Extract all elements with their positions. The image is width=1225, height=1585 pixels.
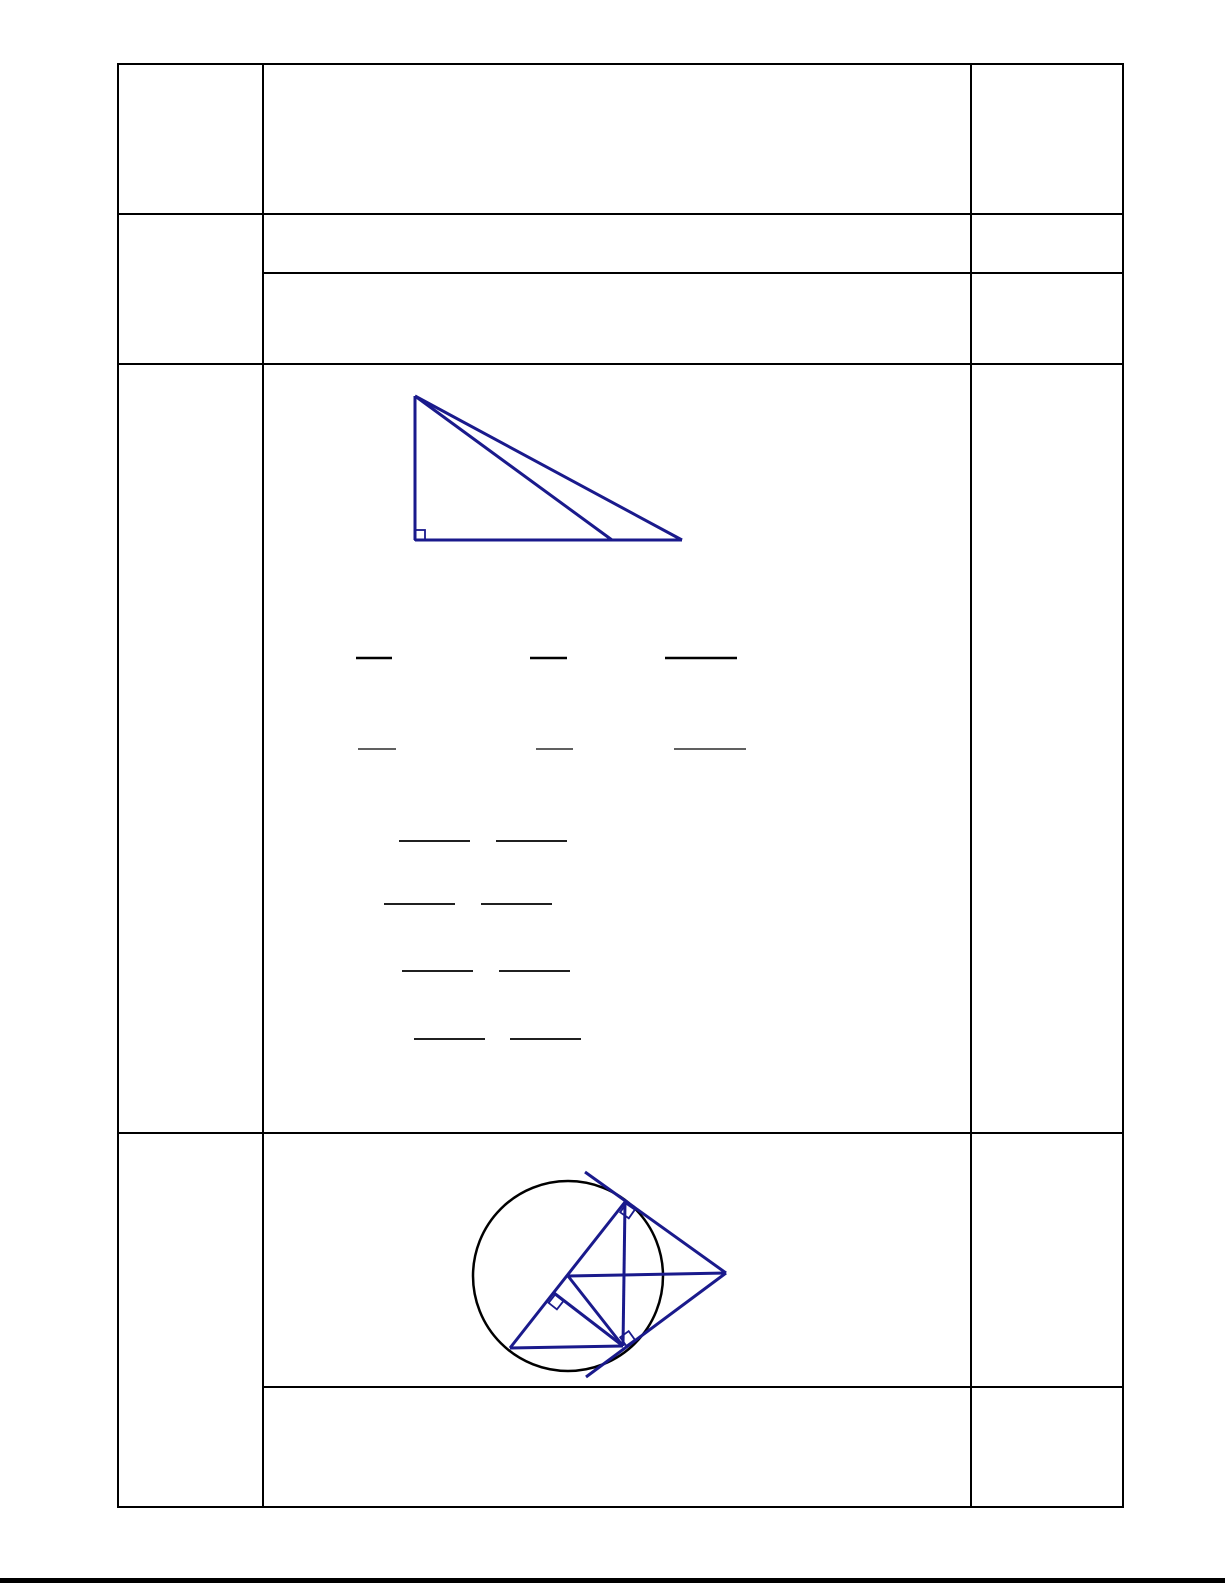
table-cell-r4b-c3[interactable] — [970, 1386, 1123, 1506]
table-divider-row3-row4 — [117, 1132, 1124, 1134]
table-cell-r2a-c2[interactable] — [262, 213, 970, 272]
table-divider-col1-col2 — [262, 63, 264, 1508]
table-divider-row1-row2 — [117, 213, 1124, 215]
table-cell-r1-c3[interactable] — [970, 63, 1123, 213]
table-subdivider-row4 — [262, 1386, 1124, 1388]
table-cell-r3-c2[interactable] — [262, 363, 970, 1132]
table-cell-r4a-c3[interactable] — [970, 1132, 1123, 1386]
table-cell-r2b-c2[interactable] — [262, 272, 970, 363]
table-cell-r2-c1[interactable] — [117, 213, 262, 363]
worksheet-page — [0, 0, 1225, 1585]
table-border-right — [1122, 63, 1124, 1508]
table-cell-r1-c2[interactable] — [262, 63, 970, 213]
table-border-bottom — [117, 1506, 1124, 1508]
table-cell-r4-c1[interactable] — [117, 1132, 262, 1506]
table-cell-r3-c3[interactable] — [970, 363, 1123, 1132]
table-border-top — [117, 63, 1124, 65]
table-cell-r1-c1[interactable] — [117, 63, 262, 213]
table-divider-row2-row3 — [117, 363, 1124, 365]
table-cell-r3-c1[interactable] — [117, 363, 262, 1132]
table-divider-col2-col3 — [970, 63, 972, 1508]
table-cell-r4b-c2[interactable] — [262, 1386, 970, 1506]
table-cell-r2a-c3[interactable] — [970, 213, 1123, 272]
page-bottom-bar — [0, 1578, 1225, 1583]
table-border-left — [117, 63, 119, 1508]
table-cell-r4a-c2[interactable] — [262, 1132, 970, 1386]
table-subdivider-row2 — [262, 272, 1124, 274]
table-cell-r2b-c3[interactable] — [970, 272, 1123, 363]
